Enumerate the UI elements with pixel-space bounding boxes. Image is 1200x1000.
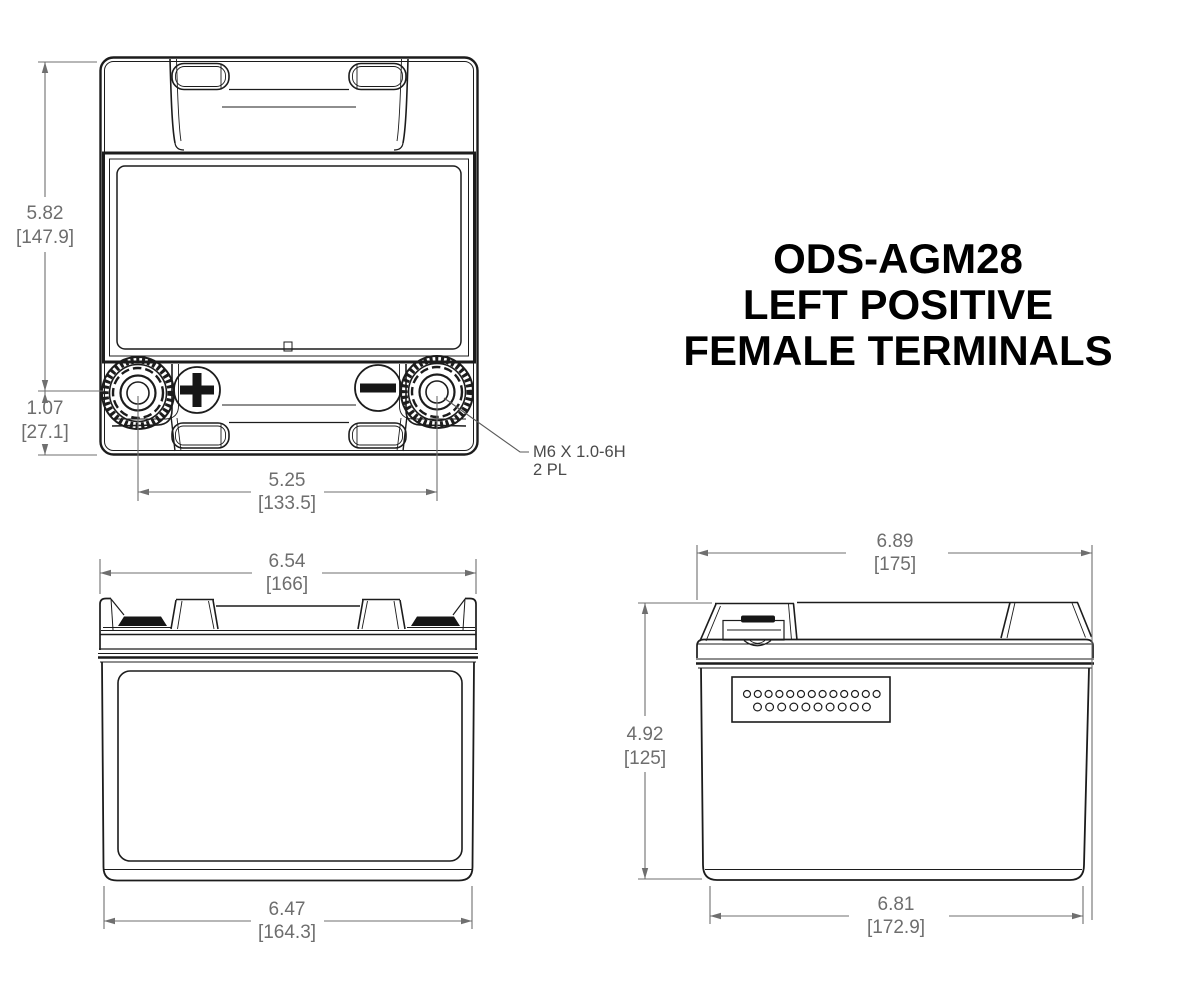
- dim-5-25-mm: [133.5]: [258, 493, 316, 514]
- top-view-outline: [101, 58, 478, 455]
- dimension-overall-depth: 6.89 [175]: [697, 531, 1092, 920]
- side-view: [696, 603, 1094, 881]
- dimension-base-width: 6.47 [164.3]: [104, 886, 472, 943]
- side-terminal-cap: [741, 616, 775, 623]
- dim-5-82-in: 5.82: [27, 203, 64, 224]
- vent-holes-row2: [754, 703, 871, 711]
- dim-4-92-mm: [125]: [624, 748, 666, 769]
- dimension-overall-width: 6.54 [166]: [100, 551, 476, 595]
- minus-icon: [355, 365, 401, 411]
- front-terminal-left: [118, 617, 167, 627]
- vent-holes-row1: [744, 691, 881, 698]
- label-panel: [104, 153, 475, 362]
- dimension-terminal-row-height: 1.07 [27.1]: [21, 391, 69, 455]
- thread-callout-line2: 2 PL: [533, 461, 567, 479]
- dim-6-81-in: 6.81: [878, 894, 915, 915]
- dim-1-07-mm: [27.1]: [21, 422, 69, 443]
- engineering-drawing-page: 5.82 [147.9] 1.07 [27.1] 5.25 [133.5] M6…: [0, 0, 1200, 1000]
- front-label-panel: [118, 671, 462, 861]
- dimension-base-depth: 6.81 [172.9]: [710, 886, 1083, 938]
- title-polarity: LEFT POSITIVE: [743, 281, 1053, 328]
- thread-callout-line1: M6 X 1.0-6H: [533, 443, 626, 461]
- dim-6-54-in: 6.54: [269, 551, 306, 572]
- vent-panel: [732, 677, 890, 722]
- engineering-drawing-canvas: 5.82 [147.9] 1.07 [27.1] 5.25 [133.5] M6…: [0, 0, 1200, 1000]
- top-view: [101, 58, 478, 455]
- dim-6-81-mm: [172.9]: [867, 917, 925, 938]
- dim-4-92-in: 4.92: [627, 724, 664, 745]
- front-handle-posts: [171, 600, 405, 630]
- dim-6-47-mm: [164.3]: [258, 922, 316, 943]
- title-model: ODS-AGM28: [773, 235, 1023, 282]
- plus-icon: [174, 367, 220, 413]
- front-view: [98, 599, 478, 881]
- dim-5-82-mm: [147.9]: [16, 227, 74, 248]
- dim-6-89-mm: [175]: [874, 554, 916, 575]
- dim-6-54-mm: [166]: [266, 574, 308, 595]
- side-rear-corner: [1001, 603, 1092, 639]
- handle-recess-top: [170, 59, 408, 150]
- dimension-body-height: 5.82 [147.9]: [16, 62, 104, 455]
- title-terminal-type: FEMALE TERMINALS: [683, 327, 1112, 374]
- dim-1-07-in: 1.07: [27, 398, 64, 419]
- dim-6-47-in: 6.47: [269, 899, 306, 920]
- title-block: ODS-AGM28 LEFT POSITIVE FEMALE TERMINALS: [683, 235, 1112, 374]
- thread-callout: M6 X 1.0-6H 2 PL: [444, 398, 626, 479]
- dim-6-89-in: 6.89: [877, 531, 914, 552]
- dim-5-25-in: 5.25: [269, 470, 306, 491]
- front-terminal-right: [411, 617, 460, 627]
